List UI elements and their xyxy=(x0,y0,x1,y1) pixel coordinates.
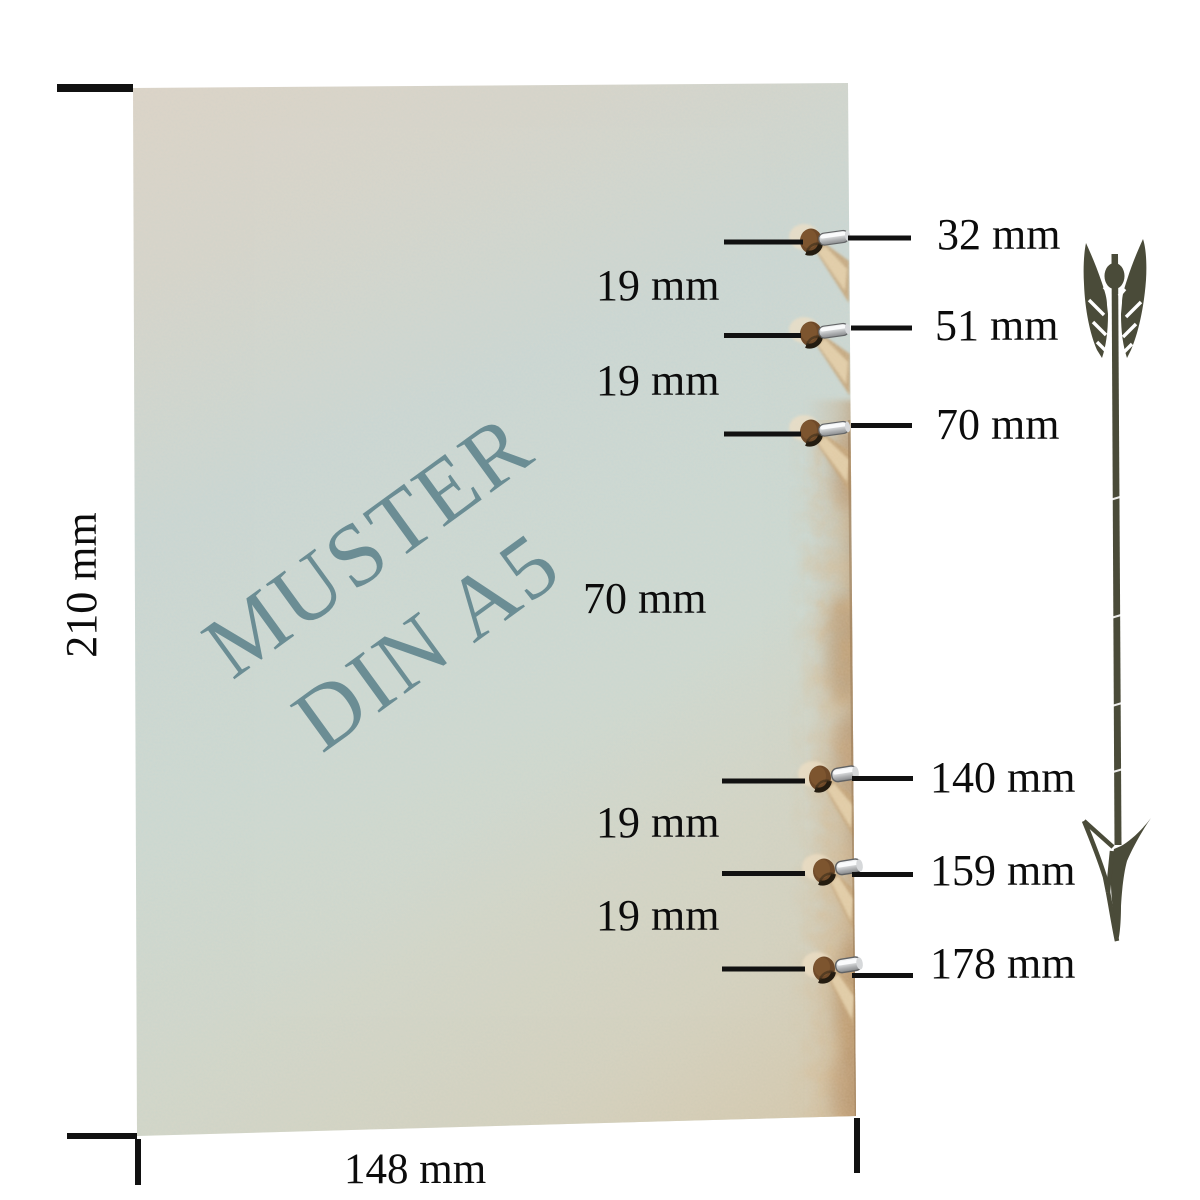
svg-text:51 mm: 51 mm xyxy=(935,301,1058,350)
svg-text:32 mm: 32 mm xyxy=(937,210,1060,259)
svg-text:19 mm: 19 mm xyxy=(596,798,719,847)
svg-text:178 mm: 178 mm xyxy=(930,939,1075,988)
svg-text:148 mm: 148 mm xyxy=(344,1146,486,1193)
svg-text:19 mm: 19 mm xyxy=(596,356,719,405)
svg-text:19 mm: 19 mm xyxy=(596,891,719,940)
svg-text:159 mm: 159 mm xyxy=(930,846,1075,895)
svg-text:70 mm: 70 mm xyxy=(936,400,1059,449)
svg-text:19 mm: 19 mm xyxy=(596,261,719,310)
svg-text:70 mm: 70 mm xyxy=(583,574,706,623)
svg-text:210 mm: 210 mm xyxy=(57,512,106,657)
svg-text:140 mm: 140 mm xyxy=(930,753,1075,802)
